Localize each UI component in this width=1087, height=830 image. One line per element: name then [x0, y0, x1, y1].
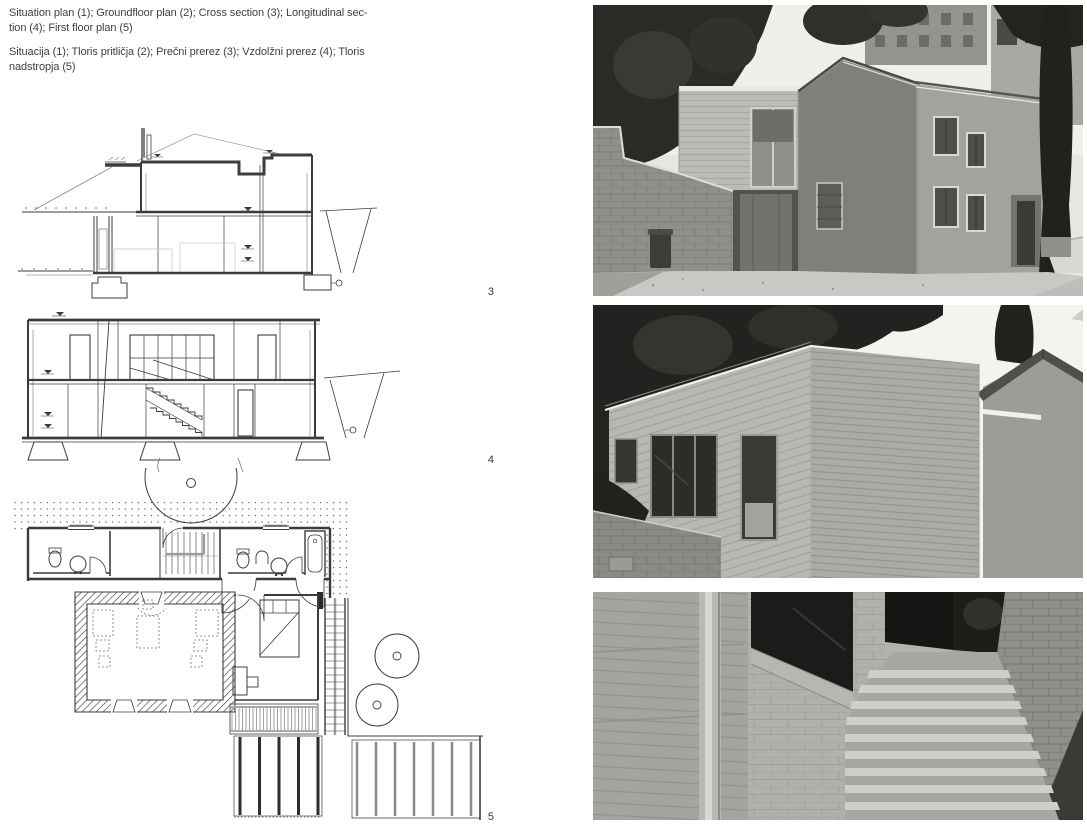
- floor-plan-lines: [10, 468, 483, 820]
- caption-english: Situation plan (1); Groundfloor plan (2)…: [9, 6, 367, 35]
- tree: [356, 684, 398, 726]
- driveway: [593, 271, 1083, 296]
- small-window: [615, 439, 637, 483]
- cross-section-lines: [18, 128, 377, 298]
- book-page: Situation plan (1); Groundfloor plan (2)…: [0, 0, 1087, 830]
- deck-planks: [231, 708, 317, 730]
- caption-sl-line-1: Situacija (1); Tloris pritličja (2); Pre…: [9, 45, 367, 60]
- waste-bin: [650, 231, 671, 268]
- furniture-dashed: [93, 600, 218, 667]
- photo-house-exterior: [593, 5, 1083, 296]
- sink: [70, 556, 86, 572]
- photo-outdoor-stairs: [593, 592, 1083, 820]
- cypress-tree: [995, 305, 1034, 365]
- first-floor-plan-drawing: [0, 468, 492, 830]
- caption-en-line-1: Situation plan (1); Groundfloor plan (2)…: [9, 6, 367, 21]
- window-glass: [885, 592, 953, 650]
- caption-sl-line-2: nadstropja (5): [9, 60, 367, 75]
- house-gable-wall: [786, 60, 916, 275]
- longitudinal-section-lines: [22, 312, 400, 472]
- cross-section-drawing: [8, 125, 483, 300]
- pergola-beams: [240, 737, 318, 815]
- photo-wooden-annex: [593, 305, 1083, 578]
- terrace-planks: [357, 742, 471, 816]
- toilet: [49, 551, 61, 567]
- longitudinal-section-drawing: [8, 308, 483, 473]
- window-band: [651, 435, 717, 517]
- shuttered-window: [817, 183, 842, 229]
- sink: [271, 558, 287, 574]
- caption-en-line-2: tion (4); First floor plan (5): [9, 21, 367, 36]
- cypress-tree: [1039, 5, 1073, 273]
- toilet: [237, 552, 249, 568]
- tree: [375, 634, 419, 678]
- caption-slovenian: Situacija (1); Tloris pritličja (2); Pre…: [9, 45, 367, 74]
- caption-block: Situation plan (1); Groundfloor plan (2)…: [9, 6, 367, 74]
